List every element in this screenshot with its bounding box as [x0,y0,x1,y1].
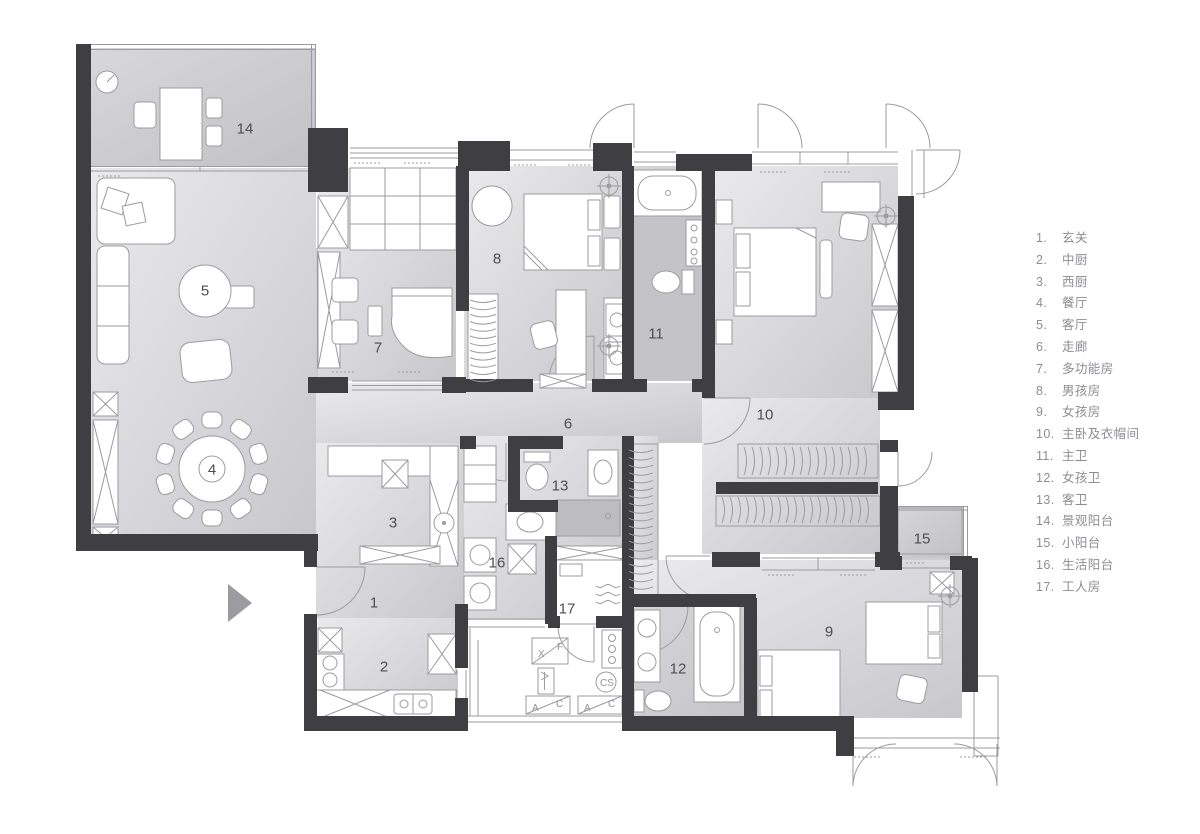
legend-item-label: 主卧及衣帽间 [1062,424,1139,446]
legend-item-number: 10. [1036,424,1062,446]
legend-item-label: 中厨 [1062,250,1088,272]
legend-item-label: 主卫 [1062,446,1088,468]
legend-item-number: 5. [1036,315,1062,337]
legend-item: 12.女孩卫 [1036,468,1139,490]
legend-item-number: 3. [1036,272,1062,294]
legend-item-label: 玄关 [1062,228,1088,250]
legend-item-number: 7. [1036,359,1062,381]
legend-item: 15.小阳台 [1036,533,1139,555]
legend-item-label: 多功能房 [1062,359,1114,381]
legend-item-number: 16. [1036,555,1062,577]
legend-item-label: 西厨 [1062,272,1088,294]
legend-item-label: 男孩房 [1062,381,1101,403]
legend-item-label: 生活阳台 [1062,555,1114,577]
room-number: 9 [825,624,833,641]
entrance-arrow-icon [228,584,252,622]
legend-item-number: 6. [1036,337,1062,359]
room-number: 2 [380,659,388,676]
room-number: 4 [208,462,216,479]
room-number: 17 [559,601,576,618]
legend-item-label: 小阳台 [1062,533,1101,555]
platform-label-c1: C [556,699,563,710]
legend-item: 14.景观阳台 [1036,511,1139,533]
room-number: 13 [552,478,569,495]
floor-plan-drawing: X F A C A C CS [0,0,1200,834]
legend-item: 5.客厅 [1036,315,1139,337]
room-number: 15 [914,531,931,548]
room-number: 10 [757,407,774,424]
legend-item: 17.工人房 [1036,577,1139,599]
legend-item: 10.主卧及衣帽间 [1036,424,1139,446]
legend-item: 9.女孩房 [1036,402,1139,424]
platform-label-a2: A [584,703,591,714]
legend-item-number: 13. [1036,490,1062,512]
floor-plan-page: X F A C A C CS [0,0,1200,834]
legend-item-number: 4. [1036,293,1062,315]
room-number: 3 [389,515,397,532]
legend-item: 7.多功能房 [1036,359,1139,381]
legend-item-number: 14. [1036,511,1062,533]
legend-item: 4.餐厅 [1036,293,1139,315]
legend: 1.玄关2.中厨3.西厨4.餐厅5.客厅6.走廊7.多功能房8.男孩房9.女孩房… [1036,228,1139,599]
legend-item-label: 客厅 [1062,315,1088,337]
legend-item-number: 12. [1036,468,1062,490]
platform-label-a1: A [532,703,539,714]
legend-item: 13.客卫 [1036,490,1139,512]
legend-item-number: 15. [1036,533,1062,555]
room-number: 8 [493,251,501,268]
legend-item-label: 餐厅 [1062,293,1088,315]
legend-item: 11.主卫 [1036,446,1139,468]
platform-label-f: F [557,642,563,653]
room-number: 14 [237,121,254,138]
legend-item: 3.西厨 [1036,272,1139,294]
legend-item-label: 走廊 [1062,337,1088,359]
legend-item: 1.玄关 [1036,228,1139,250]
legend-item-label: 客卫 [1062,490,1088,512]
room-number: 6 [564,416,572,433]
legend-item-number: 2. [1036,250,1062,272]
legend-item-number: 11. [1036,446,1062,468]
room-number: 11 [648,326,664,343]
legend-item-number: 9. [1036,402,1062,424]
legend-item: 2.中厨 [1036,250,1139,272]
room-number: 5 [201,283,209,300]
room-number: 7 [374,340,382,357]
platform-label-cs: CS [600,678,614,689]
legend-item-number: 1. [1036,228,1062,250]
legend-item-label: 女孩卫 [1062,468,1101,490]
legend-item-label: 女孩房 [1062,402,1101,424]
room-number: 16 [489,555,506,572]
legend-item-label: 工人房 [1062,577,1101,599]
legend-item: 8.男孩房 [1036,381,1139,403]
legend-item-label: 景观阳台 [1062,511,1114,533]
legend-item-number: 8. [1036,381,1062,403]
legend-item: 6.走廊 [1036,337,1139,359]
room-number: 12 [670,661,687,678]
legend-item: 16.生活阳台 [1036,555,1139,577]
legend-item-number: 17. [1036,577,1062,599]
room-number: 1 [370,595,378,612]
platform-label-c2: C [608,699,615,710]
platform-label-x: X [538,649,545,660]
